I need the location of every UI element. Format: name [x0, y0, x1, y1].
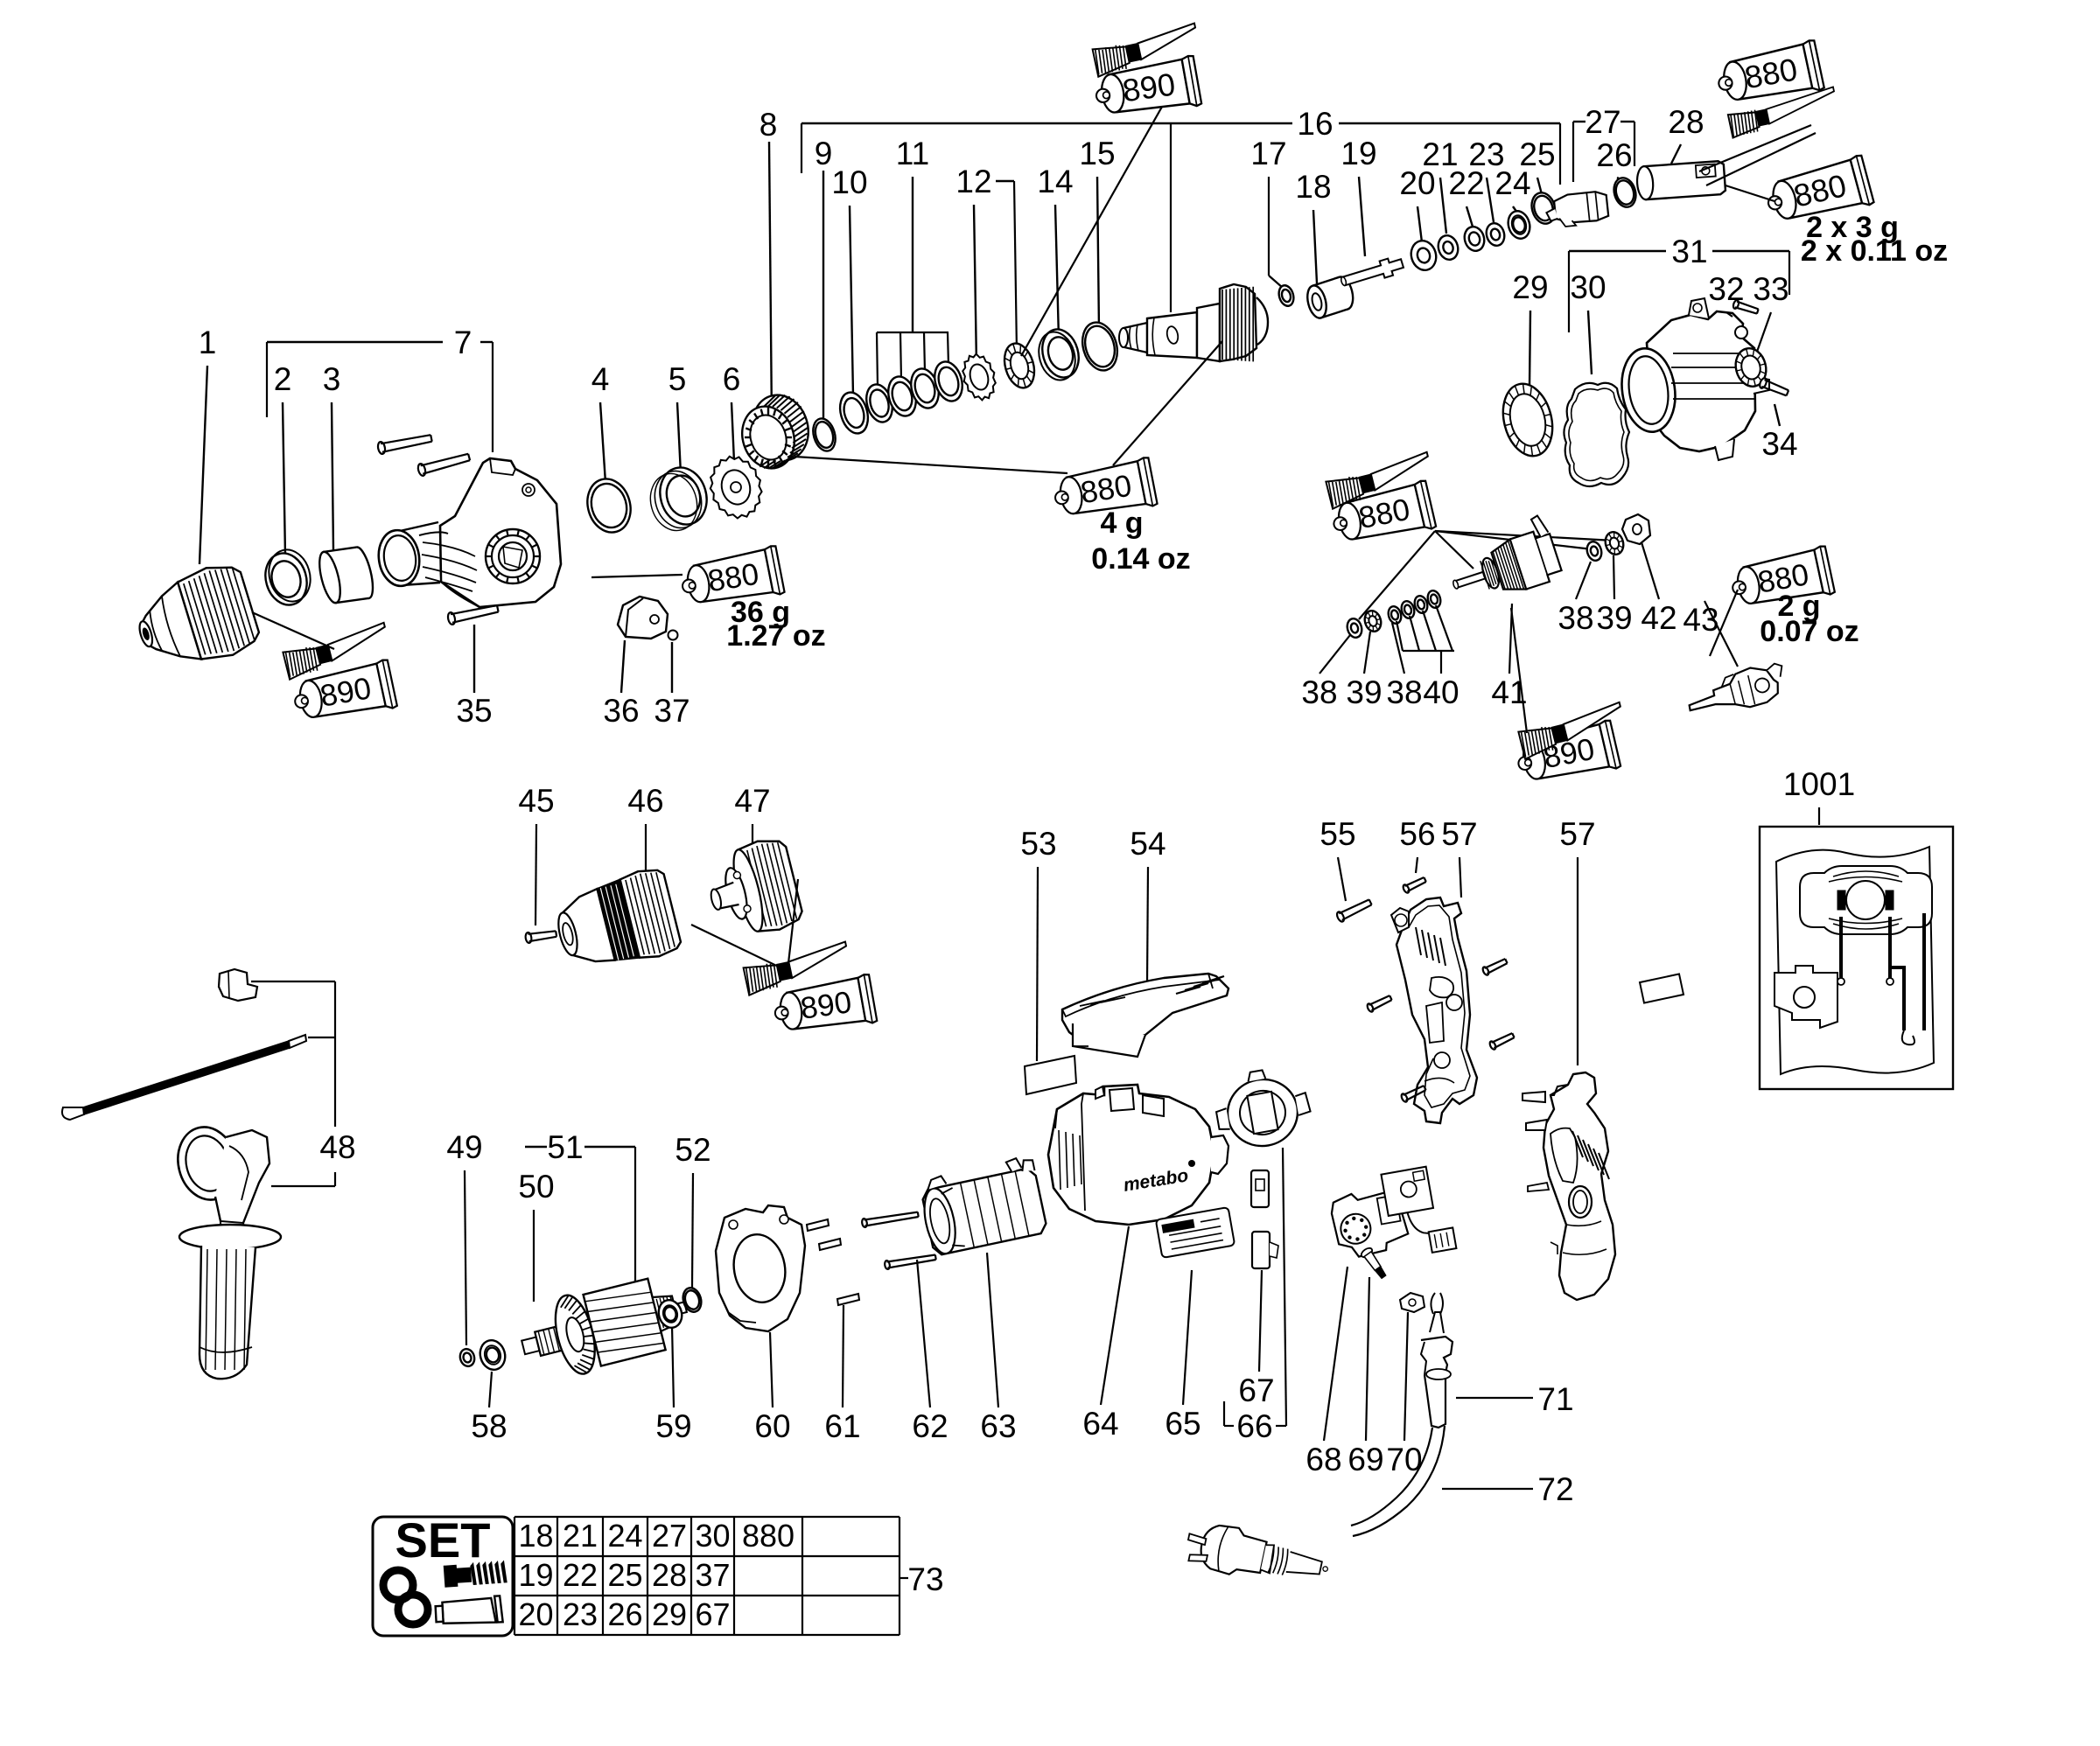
svg-text:28: 28	[652, 1557, 687, 1593]
svg-text:68: 68	[1305, 1442, 1341, 1477]
svg-text:51: 51	[547, 1129, 583, 1165]
svg-text:1001: 1001	[1783, 766, 1855, 802]
svg-text:37: 37	[654, 693, 689, 729]
svg-text:63: 63	[980, 1408, 1016, 1444]
svg-text:27: 27	[652, 1518, 687, 1554]
svg-text:38: 38	[1386, 674, 1422, 710]
svg-text:30: 30	[695, 1518, 730, 1554]
svg-text:40: 40	[1423, 674, 1459, 710]
svg-text:890: 890	[1120, 66, 1177, 108]
svg-text:56: 56	[1399, 816, 1435, 852]
svg-text:45: 45	[518, 783, 554, 819]
svg-text:38: 38	[1301, 674, 1337, 710]
svg-text:9: 9	[815, 136, 833, 171]
svg-text:62: 62	[912, 1408, 948, 1444]
svg-text:16: 16	[1297, 106, 1333, 142]
svg-text:17: 17	[1250, 136, 1286, 171]
svg-text:0.14 oz: 0.14 oz	[1091, 542, 1190, 576]
svg-text:2: 2	[274, 361, 292, 397]
svg-text:19: 19	[1340, 136, 1376, 171]
svg-text:1: 1	[199, 325, 217, 360]
svg-text:59: 59	[655, 1408, 691, 1444]
svg-text:71: 71	[1537, 1381, 1573, 1417]
svg-text:1.27 oz: 1.27 oz	[726, 619, 825, 653]
svg-text:34: 34	[1761, 426, 1797, 462]
svg-text:64: 64	[1082, 1406, 1118, 1442]
svg-text:61: 61	[824, 1408, 860, 1444]
svg-text:29: 29	[1512, 269, 1548, 305]
svg-text:37: 37	[695, 1557, 730, 1593]
svg-text:14: 14	[1037, 164, 1073, 199]
svg-text:890: 890	[798, 985, 853, 1026]
svg-text:67: 67	[1238, 1372, 1274, 1408]
svg-text:72: 72	[1537, 1471, 1573, 1507]
svg-text:6: 6	[723, 361, 741, 397]
svg-text:7: 7	[454, 325, 472, 360]
svg-text:53: 53	[1020, 826, 1056, 862]
svg-text:42: 42	[1641, 600, 1676, 636]
svg-text:12: 12	[955, 164, 991, 199]
svg-text:33: 33	[1753, 271, 1788, 307]
svg-text:31: 31	[1671, 234, 1707, 269]
svg-text:20: 20	[518, 1596, 553, 1632]
svg-text:55: 55	[1319, 816, 1355, 852]
svg-text:22: 22	[563, 1557, 598, 1593]
svg-text:39: 39	[1596, 600, 1632, 636]
svg-text:26: 26	[1596, 137, 1632, 173]
svg-text:39: 39	[1346, 674, 1382, 710]
svg-text:49: 49	[446, 1129, 482, 1165]
svg-text:38: 38	[1557, 600, 1593, 636]
svg-text:4: 4	[591, 361, 610, 397]
svg-text:4 g: 4 g	[1100, 506, 1143, 540]
svg-text:3: 3	[323, 361, 341, 397]
svg-text:54: 54	[1130, 826, 1165, 862]
svg-text:57: 57	[1441, 816, 1477, 852]
svg-text:28: 28	[1668, 104, 1704, 140]
svg-text:18: 18	[1295, 169, 1331, 205]
svg-text:47: 47	[734, 783, 770, 819]
svg-text:880: 880	[742, 1518, 794, 1554]
svg-text:25: 25	[1519, 136, 1555, 172]
svg-text:23: 23	[563, 1596, 598, 1632]
svg-text:SET: SET	[395, 1512, 491, 1568]
svg-text:66: 66	[1236, 1408, 1272, 1444]
svg-text:21: 21	[563, 1518, 598, 1554]
svg-text:50: 50	[518, 1169, 554, 1205]
svg-text:11: 11	[896, 136, 929, 171]
svg-text:46: 46	[627, 783, 663, 819]
svg-text:0.07 oz: 0.07 oz	[1760, 615, 1858, 648]
svg-text:24: 24	[607, 1518, 642, 1554]
svg-text:35: 35	[456, 693, 492, 729]
svg-text:36: 36	[603, 693, 639, 729]
svg-text:27: 27	[1585, 104, 1620, 140]
svg-text:67: 67	[695, 1596, 730, 1632]
svg-text:57: 57	[1559, 816, 1595, 852]
svg-text:29: 29	[652, 1596, 687, 1632]
svg-text:73: 73	[907, 1561, 943, 1597]
svg-text:19: 19	[518, 1557, 553, 1593]
svg-text:60: 60	[754, 1408, 790, 1444]
svg-text:30: 30	[1570, 269, 1606, 305]
svg-text:52: 52	[675, 1132, 710, 1168]
svg-text:48: 48	[319, 1129, 355, 1165]
svg-text:26: 26	[607, 1596, 642, 1632]
svg-text:8: 8	[759, 107, 778, 143]
svg-text:2 x 0.11 oz: 2 x 0.11 oz	[1801, 234, 1948, 268]
svg-text:10: 10	[831, 164, 867, 200]
svg-text:25: 25	[607, 1557, 642, 1593]
svg-text:18: 18	[518, 1518, 553, 1554]
svg-text:5: 5	[668, 361, 687, 397]
svg-text:15: 15	[1079, 136, 1115, 171]
svg-text:69: 69	[1347, 1442, 1383, 1477]
svg-text:58: 58	[471, 1408, 507, 1444]
svg-text:65: 65	[1165, 1406, 1200, 1442]
